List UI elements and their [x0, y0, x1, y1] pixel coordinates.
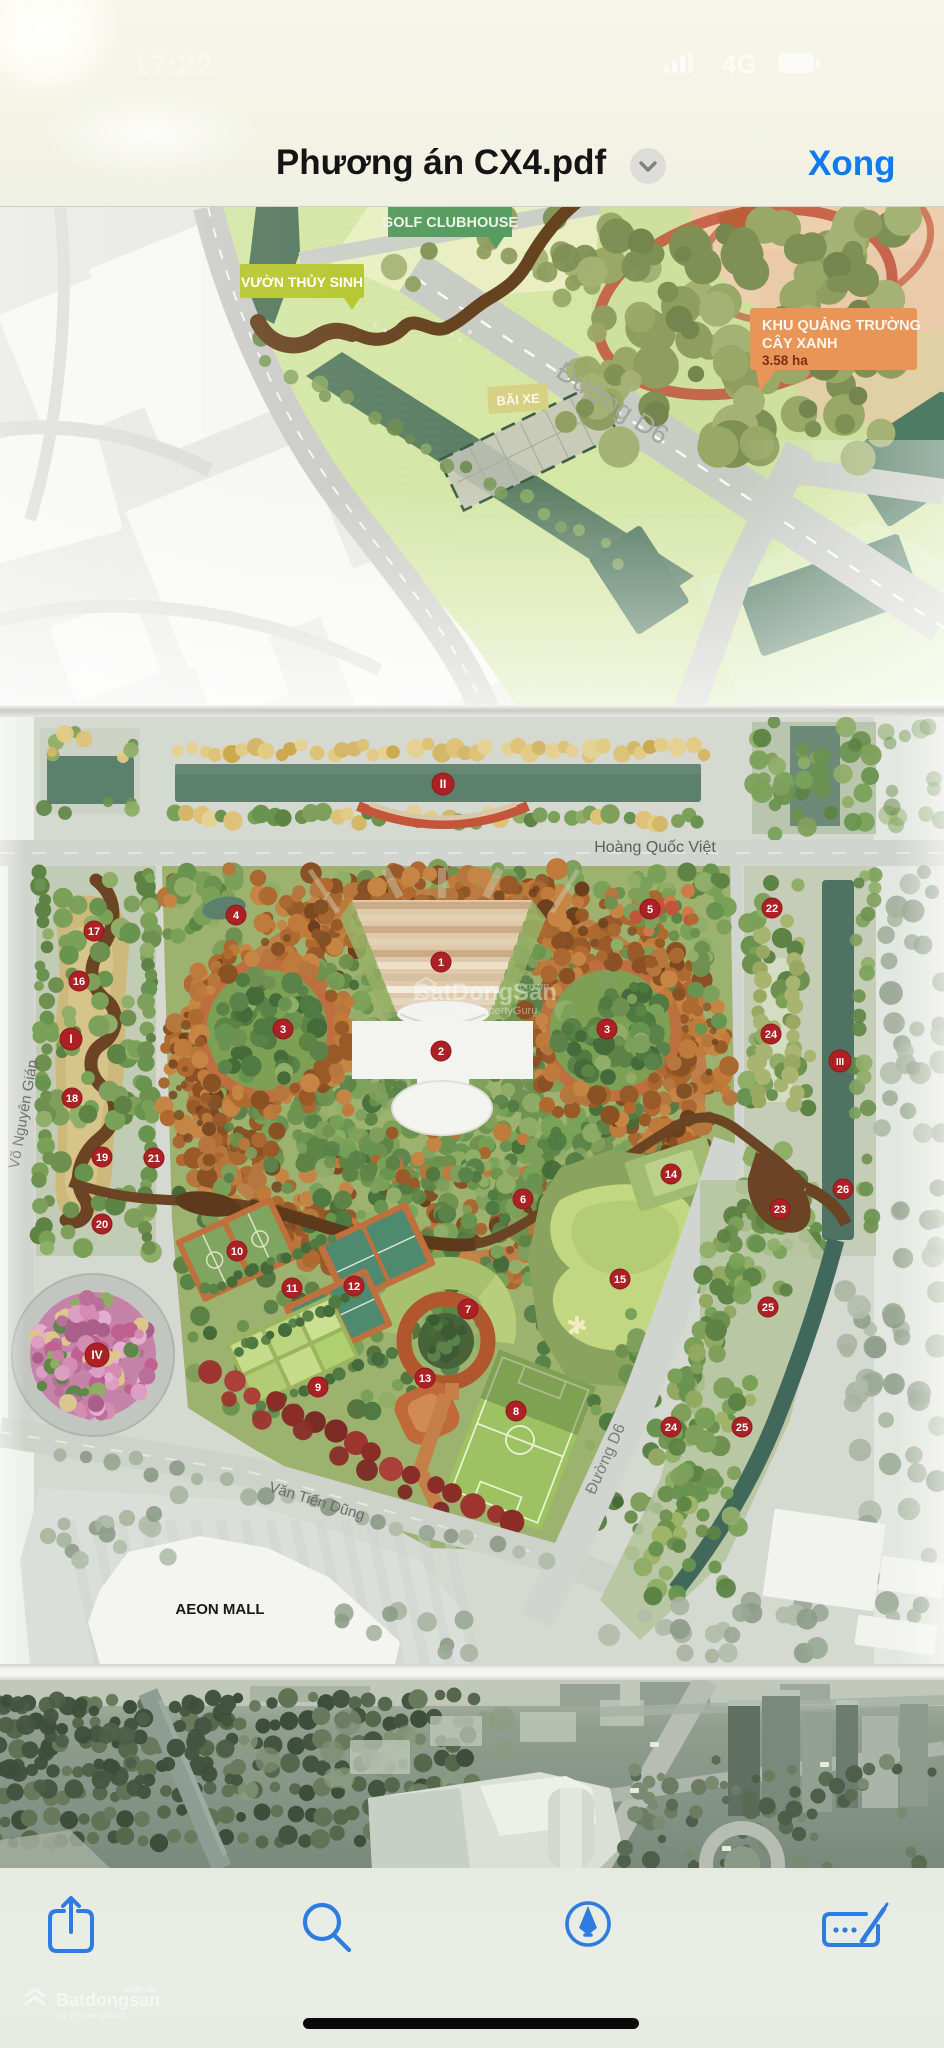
svg-text:3: 3 [280, 1024, 286, 1036]
svg-text:by PropertyGuru: by PropertyGuru [57, 2010, 127, 2021]
svg-text:10: 10 [231, 1246, 243, 1258]
svg-text:by PropertyGuru: by PropertyGuru [457, 1005, 538, 1017]
svg-text:13: 13 [419, 1373, 431, 1385]
svg-text:11: 11 [286, 1283, 298, 1295]
svg-text:18: 18 [66, 1093, 78, 1105]
svg-text:2: 2 [438, 1046, 444, 1058]
svg-text:II: II [440, 777, 447, 791]
svg-text:26: 26 [837, 1184, 849, 1196]
svg-text:12: 12 [348, 1281, 360, 1293]
svg-text:19: 19 [96, 1152, 108, 1164]
svg-text:4G: 4G [722, 49, 757, 79]
svg-text:3: 3 [604, 1024, 610, 1036]
svg-text:21: 21 [148, 1153, 160, 1165]
svg-text:9: 9 [315, 1382, 321, 1394]
svg-text:24: 24 [665, 1422, 678, 1434]
svg-text:15: 15 [614, 1274, 626, 1286]
svg-text:BatDongSan: BatDongSan [413, 979, 557, 1006]
svg-text:17: 17 [88, 926, 100, 938]
svg-text:8: 8 [513, 1406, 519, 1418]
svg-text:6: 6 [520, 1194, 526, 1206]
svg-text:1: 1 [438, 957, 444, 969]
svg-text:16: 16 [73, 976, 85, 988]
svg-text:25: 25 [762, 1302, 774, 1314]
svg-text:14: 14 [665, 1169, 678, 1181]
svg-text:20: 20 [96, 1219, 108, 1231]
svg-text:Hoàng Quốc Việt: Hoàng Quốc Việt [594, 839, 716, 856]
svg-text:5: 5 [647, 904, 653, 916]
svg-text:25: 25 [736, 1422, 748, 1434]
svg-text:III: III [836, 1057, 845, 1068]
svg-text:24: 24 [765, 1029, 778, 1041]
svg-text:7: 7 [465, 1304, 471, 1316]
svg-text:I: I [69, 1032, 72, 1046]
svg-text:.com.vn: .com.vn [122, 1984, 156, 1994]
svg-text:4: 4 [233, 910, 240, 922]
svg-text:22: 22 [766, 903, 778, 915]
svg-text:23: 23 [774, 1204, 786, 1216]
svg-text:IV: IV [91, 1348, 102, 1362]
svg-text:AEON MALL: AEON MALL [175, 1601, 264, 1618]
